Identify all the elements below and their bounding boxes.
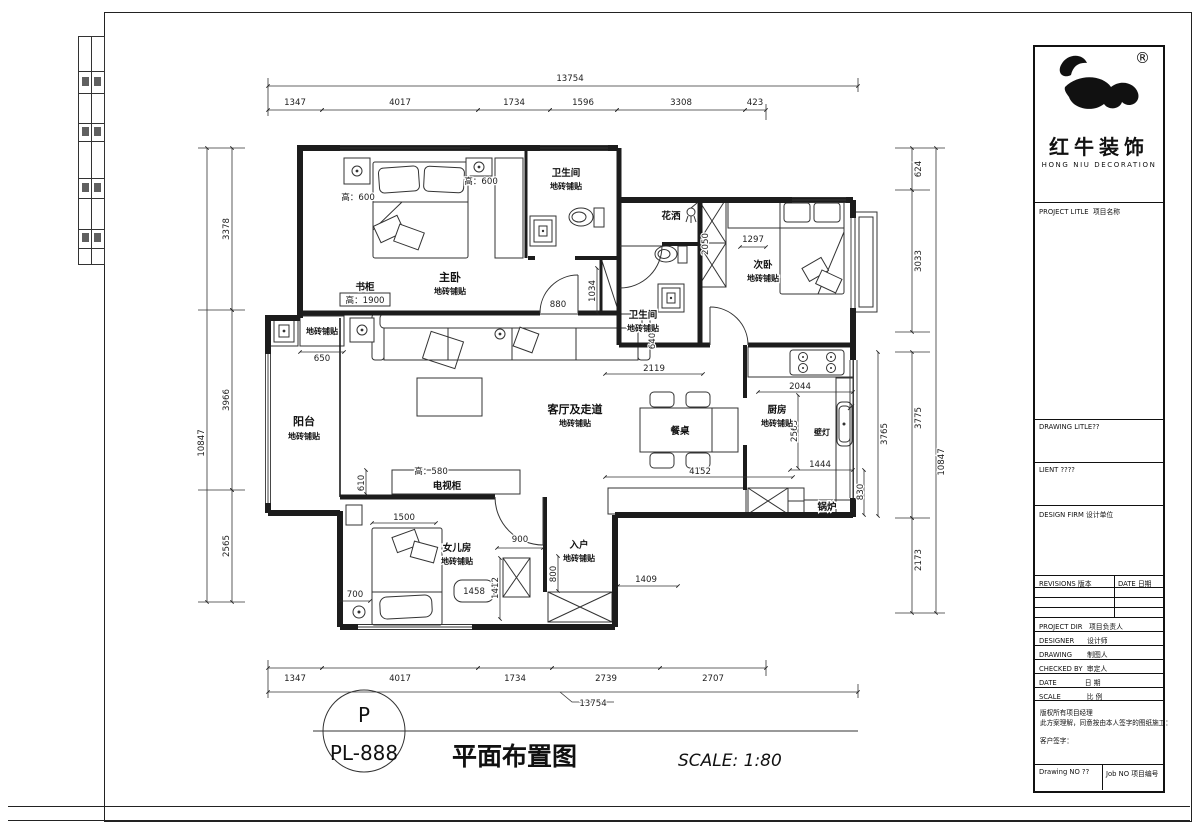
balcony-fixtures xyxy=(270,316,362,525)
second-bed xyxy=(780,198,844,294)
svg-text:880: 880 xyxy=(550,300,566,310)
svg-text:高：600: 高：600 xyxy=(464,175,498,187)
brand-name: 红牛装饰 xyxy=(1035,131,1163,160)
drawing-sheet: 13754 1347 4017 1734 1596 3308 423 1347 … xyxy=(0,0,1200,834)
svg-text:900: 900 xyxy=(512,535,528,545)
svg-text:1409: 1409 xyxy=(635,575,657,585)
svg-text:1458: 1458 xyxy=(463,587,485,597)
svg-text:1444: 1444 xyxy=(809,460,831,470)
master-bed xyxy=(373,162,468,258)
svg-text:830: 830 xyxy=(856,484,866,500)
svg-text:入户: 入户 xyxy=(568,539,588,551)
svg-text:423: 423 xyxy=(747,98,763,108)
svg-text:1297: 1297 xyxy=(742,235,764,245)
svg-text:1734: 1734 xyxy=(503,98,525,108)
x-cabinet-entry xyxy=(548,592,612,622)
svg-text:电视柜: 电视柜 xyxy=(433,480,462,492)
project-dir-label: PROJECT DIR 项目负责人 xyxy=(1039,621,1123,631)
svg-text:高：1900: 高：1900 xyxy=(345,294,384,306)
svg-text:餐桌: 餐桌 xyxy=(669,425,690,437)
svg-text:1412: 1412 xyxy=(491,577,501,599)
svg-text:1034: 1034 xyxy=(588,280,598,302)
svg-text:卫生间: 卫生间 xyxy=(552,167,581,179)
svg-text:2739: 2739 xyxy=(595,674,617,684)
girl-bed xyxy=(372,528,442,625)
drawing-title-label: DRAWING LITLE?? xyxy=(1039,423,1099,431)
svg-text:2044: 2044 xyxy=(789,382,811,392)
title-block: ® 红牛装饰 HONG NIU DECORATION PROJECT LITLE… xyxy=(1033,45,1165,793)
svg-text:地砖铺贴: 地砖铺贴 xyxy=(306,326,338,336)
svg-text:地砖铺贴: 地砖铺贴 xyxy=(761,418,793,428)
svg-text:地砖铺贴: 地砖铺贴 xyxy=(627,323,659,333)
marker-letter: P xyxy=(358,703,370,727)
svg-text:2119: 2119 xyxy=(643,364,665,374)
svg-text:2173: 2173 xyxy=(914,549,924,571)
company-logo: ® 红牛装饰 HONG NIU DECORATION xyxy=(1035,47,1163,202)
svg-text:®: ® xyxy=(1135,49,1150,67)
brand-name-en: HONG NIU DECORATION xyxy=(1035,161,1163,169)
svg-text:主卧: 主卧 xyxy=(439,270,461,284)
svg-text:2565: 2565 xyxy=(222,535,232,557)
svg-text:阳台: 阳台 xyxy=(293,414,315,428)
client-label: LIENT ???? xyxy=(1039,466,1075,474)
svg-text:高：580: 高：580 xyxy=(414,465,448,477)
svg-text:女儿房: 女儿房 xyxy=(443,542,472,554)
svg-text:客厅及走道: 客厅及走道 xyxy=(547,402,603,416)
svg-text:3765: 3765 xyxy=(880,423,890,445)
svg-text:2050: 2050 xyxy=(701,233,711,255)
svg-text:地砖铺贴: 地砖铺贴 xyxy=(441,556,473,566)
designer-label: DESIGNER 设计师 xyxy=(1039,635,1108,645)
svg-text:4017: 4017 xyxy=(389,674,411,684)
windows xyxy=(266,146,858,630)
svg-text:地砖铺贴: 地砖铺贴 xyxy=(434,286,466,296)
job-no-label: Job NO 项目编号 xyxy=(1106,768,1158,778)
sheet-bottom-line-2 xyxy=(8,820,1190,821)
design-firm-label: DESIGN FIRM 设计单位 xyxy=(1039,509,1113,519)
svg-text:650: 650 xyxy=(314,354,330,364)
drawing-scale: SCALE: 1:80 xyxy=(678,751,782,771)
checked-by-label: CHECKED BY 审定人 xyxy=(1039,663,1107,673)
svg-text:地砖铺贴: 地砖铺贴 xyxy=(747,273,779,283)
bay-window xyxy=(855,212,877,312)
revision-strip xyxy=(78,36,105,265)
svg-text:厨房: 厨房 xyxy=(767,404,786,416)
svg-text:3966: 3966 xyxy=(222,389,232,411)
svg-text:壁灯: 壁灯 xyxy=(814,427,830,437)
floor-plan: 13754 1347 4017 1734 1596 3308 423 1347 … xyxy=(190,60,960,790)
svg-text:卫生间: 卫生间 xyxy=(629,309,658,321)
project-title-label: PROJECT LITLE 项目名称 xyxy=(1039,206,1120,216)
svg-text:3378: 3378 xyxy=(222,218,232,240)
svg-text:地砖铺贴: 地砖铺贴 xyxy=(559,418,591,428)
svg-text:800: 800 xyxy=(549,566,559,582)
bath2-fixtures xyxy=(655,246,687,312)
note-line-1: 版权所有项目经理 xyxy=(1040,707,1093,717)
svg-text:2707: 2707 xyxy=(702,674,724,684)
note-line-2: 此方案理解，同意按由本人签字的图纸施工： xyxy=(1040,717,1172,727)
x-cabinet-girl xyxy=(503,558,530,597)
svg-text:1347: 1347 xyxy=(284,674,306,684)
svg-text:1347: 1347 xyxy=(284,98,306,108)
marker-number: PL-888 xyxy=(330,741,398,765)
drawing-no-label: Drawing NO ?? xyxy=(1039,768,1089,776)
svg-text:地砖铺贴: 地砖铺贴 xyxy=(563,553,595,563)
svg-text:4017: 4017 xyxy=(389,98,411,108)
svg-text:4152: 4152 xyxy=(689,467,711,477)
drawing-title: 平面布置图 xyxy=(452,742,577,771)
svg-text:10847: 10847 xyxy=(197,429,207,456)
svg-text:610: 610 xyxy=(357,475,367,491)
svg-text:书柜: 书柜 xyxy=(355,281,375,293)
svg-text:1596: 1596 xyxy=(572,98,594,108)
svg-text:3033: 3033 xyxy=(914,250,924,272)
drawing-label: DRAWING 制图人 xyxy=(1039,649,1108,659)
svg-text:1734: 1734 xyxy=(504,674,526,684)
svg-text:13754: 13754 xyxy=(556,74,583,84)
svg-text:13754: 13754 xyxy=(579,699,606,709)
svg-text:700: 700 xyxy=(347,590,363,600)
sofa xyxy=(350,314,650,360)
svg-text:地砖铺贴: 地砖铺贴 xyxy=(288,431,320,441)
bath1-fixtures xyxy=(530,208,604,246)
bull-logo-icon: ® xyxy=(1039,47,1159,125)
svg-text:3308: 3308 xyxy=(670,98,692,108)
svg-text:地砖铺贴: 地砖铺贴 xyxy=(550,181,582,191)
x-cabinet-corridor xyxy=(748,488,804,514)
svg-text:锅炉: 锅炉 xyxy=(817,501,837,513)
svg-text:3775: 3775 xyxy=(914,407,924,429)
date-label: DATE 日 期 xyxy=(1039,677,1101,687)
walls xyxy=(268,145,853,627)
svg-text:1500: 1500 xyxy=(393,513,415,523)
svg-text:高：600: 高：600 xyxy=(341,191,375,203)
duct-shaft xyxy=(601,258,619,313)
svg-text:640: 640 xyxy=(648,333,658,349)
sheet-bottom-line-1 xyxy=(8,806,1190,807)
note-line-3: 客户签字： xyxy=(1040,735,1073,745)
shower-head-symbol xyxy=(686,203,697,223)
svg-text:10847: 10847 xyxy=(937,448,947,475)
svg-text:624: 624 xyxy=(914,161,924,177)
svg-text:次卧: 次卧 xyxy=(753,259,773,271)
svg-text:花洒: 花洒 xyxy=(661,210,681,222)
